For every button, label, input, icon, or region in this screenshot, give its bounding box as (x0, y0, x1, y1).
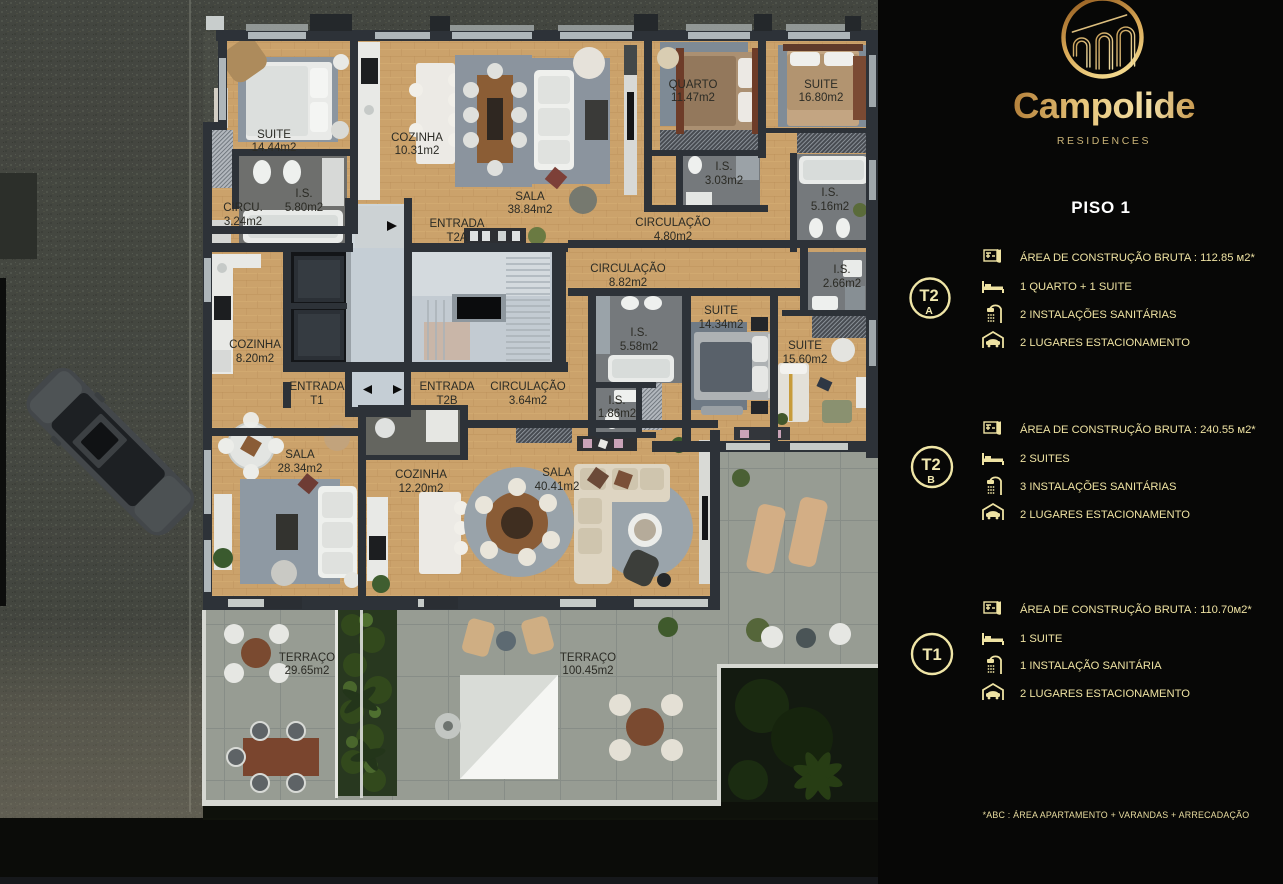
svg-text:CIRCULAÇÃO: CIRCULAÇÃO (635, 216, 710, 229)
svg-text:12.20m2: 12.20m2 (399, 483, 444, 495)
svg-text:COZINHA: COZINHA (395, 469, 447, 481)
svg-text:5.80m2: 5.80m2 (285, 202, 323, 214)
svg-text:I.S.: I.S. (608, 395, 625, 407)
svg-text:8.20m2: 8.20m2 (236, 353, 274, 365)
svg-text:ÁREA DE CONSTRUÇÃO BRUTA : 11: ÁREA DE CONSTRUÇÃO BRUTA : 112.85 м2* (1020, 251, 1255, 264)
svg-text:1 INSTALAÇÃO SANITÁRIA: 1 INSTALAÇÃO SANITÁRIA (1020, 659, 1162, 672)
svg-text:5.16m2: 5.16m2 (811, 201, 849, 213)
svg-text:14.34m2: 14.34m2 (699, 319, 744, 331)
svg-text:4.80m2: 4.80m2 (654, 231, 692, 243)
svg-text:SUITE: SUITE (804, 79, 838, 91)
svg-text:ENTRADA: ENTRADA (430, 218, 485, 230)
svg-text:I.S.: I.S. (833, 264, 850, 276)
svg-text:8.82m2: 8.82m2 (609, 277, 647, 289)
svg-text:ENTRADA: ENTRADA (420, 381, 475, 393)
svg-text:ÁREA DE CONSTRUÇÃO BRUTA : 11: ÁREA DE CONSTRUÇÃO BRUTA : 110.70м2* (1020, 603, 1252, 616)
svg-text:Campolide: Campolide (1013, 85, 1195, 126)
svg-text:40.41m2: 40.41m2 (535, 481, 580, 493)
svg-text:I.S.: I.S. (295, 188, 312, 200)
svg-text:PISO 1: PISO 1 (1071, 198, 1131, 217)
svg-text:SUITE: SUITE (788, 340, 822, 352)
svg-text:T2: T2 (921, 456, 940, 474)
svg-text:1 SUITE: 1 SUITE (1020, 633, 1062, 645)
svg-text:CIRCU.: CIRCU. (223, 202, 263, 214)
svg-text:I.S.: I.S. (715, 161, 732, 173)
svg-text:38.84m2: 38.84m2 (508, 204, 553, 216)
svg-text:2 LUGARES ESTACIONAMENTO: 2 LUGARES ESTACIONAMENTO (1020, 337, 1190, 349)
svg-text:SALA: SALA (542, 467, 572, 479)
svg-text:I.S.: I.S. (821, 187, 838, 199)
svg-text:2 LUGARES ESTACIONAMENTO: 2 LUGARES ESTACIONAMENTO (1020, 509, 1190, 521)
svg-text:B: B (927, 474, 935, 486)
svg-text:COZINHA: COZINHA (391, 132, 443, 144)
svg-text:3.24m2: 3.24m2 (224, 216, 262, 228)
svg-text:T2A: T2A (446, 232, 467, 244)
svg-text:29.65m2: 29.65m2 (285, 665, 330, 677)
svg-text:3.03m2: 3.03m2 (705, 175, 743, 187)
svg-text:QUARTO: QUARTO (669, 79, 718, 91)
svg-text:SUITE: SUITE (257, 129, 291, 141)
svg-text:5.58m2: 5.58m2 (620, 341, 658, 353)
svg-text:1.86m2: 1.86m2 (598, 408, 636, 420)
svg-text:2 SUITES: 2 SUITES (1020, 453, 1070, 465)
svg-text:COZINHA: COZINHA (229, 339, 281, 351)
svg-text:14.44m2: 14.44m2 (252, 142, 297, 154)
svg-text:3 INSTALAÇÕES SANITÁRIAS: 3 INSTALAÇÕES SANITÁRIAS (1020, 480, 1176, 493)
svg-text:RESIDENCES: RESIDENCES (1057, 135, 1151, 147)
svg-text:SALA: SALA (515, 191, 545, 203)
svg-text:11.47m2: 11.47m2 (671, 92, 715, 104)
svg-text:100.45m2: 100.45m2 (562, 665, 613, 677)
svg-text:A: A (925, 305, 933, 317)
svg-text:2 LUGARES ESTACIONAMENTO: 2 LUGARES ESTACIONAMENTO (1020, 688, 1190, 700)
svg-text:T2B: T2B (436, 395, 457, 407)
svg-text:T1: T1 (310, 395, 323, 407)
svg-text:15.60m2: 15.60m2 (783, 354, 828, 366)
svg-text:10.31m2: 10.31m2 (395, 145, 440, 157)
svg-text:TERRAÇO: TERRAÇO (560, 652, 616, 664)
svg-text:CIRCULAÇÃO: CIRCULAÇÃO (490, 380, 565, 393)
svg-text:CIRCULAÇÃO: CIRCULAÇÃO (590, 262, 665, 275)
svg-text:ÁREA DE CONSTRUÇÃO BRUTA : 24: ÁREA DE CONSTRUÇÃO BRUTA : 240.55 м2* (1020, 423, 1256, 436)
svg-text:28.34m2: 28.34m2 (278, 463, 323, 475)
svg-text:T2: T2 (919, 287, 938, 305)
svg-text:3.64m2: 3.64m2 (509, 395, 547, 407)
svg-text:I.S.: I.S. (630, 327, 647, 339)
svg-text:*ABC : ÁREA APARTAMENTO + VAR: *ABC : ÁREA APARTAMENTO + VARANDAS + ARR… (983, 810, 1250, 820)
svg-text:2 INSTALAÇÕES SANITÁRIAS: 2 INSTALAÇÕES SANITÁRIAS (1020, 308, 1176, 321)
svg-text:ENTRADA: ENTRADA (290, 381, 345, 393)
svg-text:16.80m2: 16.80m2 (799, 92, 844, 104)
svg-text:TERRAÇO: TERRAÇO (279, 652, 335, 664)
svg-text:T1: T1 (922, 646, 941, 664)
svg-text:SALA: SALA (285, 449, 315, 461)
svg-text:SUITE: SUITE (704, 305, 738, 317)
svg-text:1 QUARTO + 1 SUITE: 1 QUARTO + 1 SUITE (1020, 281, 1132, 293)
svg-text:2.66m2: 2.66m2 (823, 278, 861, 290)
